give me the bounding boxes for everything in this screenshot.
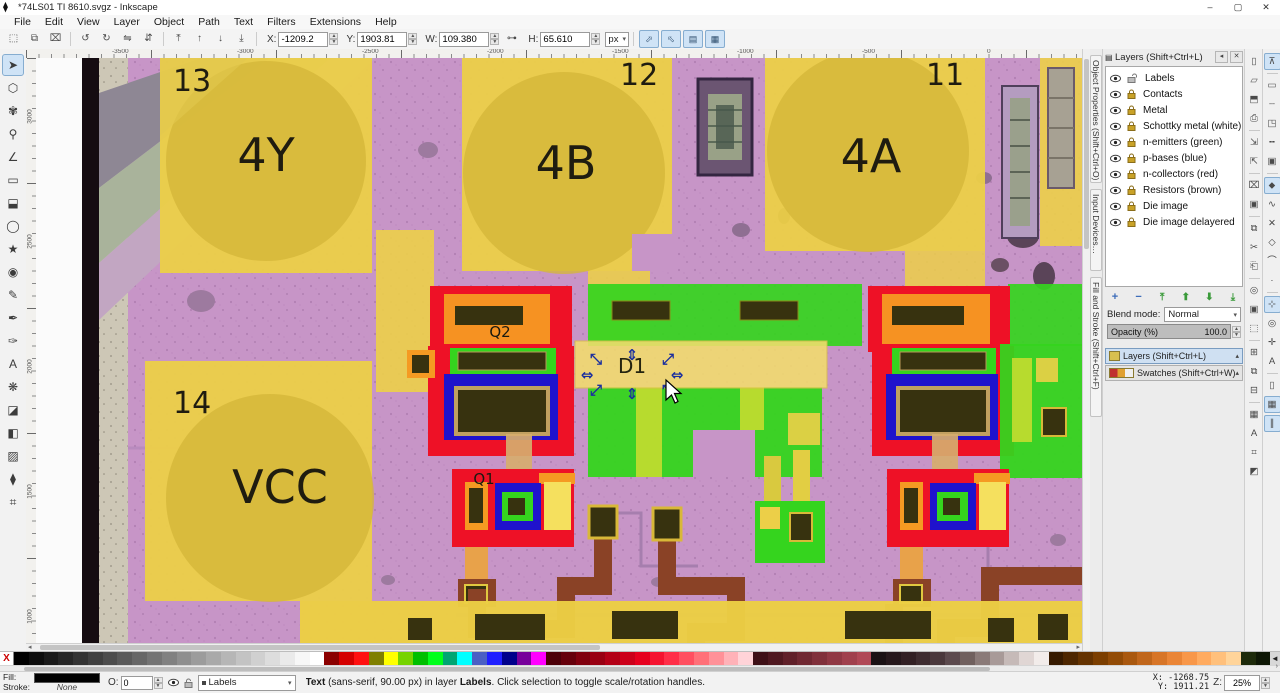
layer-locked-icon[interactable] xyxy=(1127,169,1136,179)
gradient-tool[interactable]: ▨ xyxy=(2,445,24,467)
palette-swatch[interactable] xyxy=(369,652,384,666)
palette-swatch[interactable] xyxy=(206,652,221,666)
hruler-label: -1000 xyxy=(737,49,754,55)
tab-input-devices[interactable]: Input Devices… xyxy=(1090,189,1102,271)
layer-visible-icon[interactable] xyxy=(1110,218,1121,227)
spray-tool[interactable]: ❋ xyxy=(2,376,24,398)
rotate-ccw-button[interactable]: ↺ xyxy=(76,30,95,48)
menu-help[interactable]: Help xyxy=(368,16,404,28)
layer-row-die-image[interactable]: Die image xyxy=(1106,198,1242,214)
duplicate-button[interactable]: ⊞ xyxy=(1246,344,1263,361)
layer-visible-icon[interactable] xyxy=(1110,122,1121,131)
palette-swatch[interactable] xyxy=(1019,652,1034,666)
cut-button[interactable]: ✂ xyxy=(1246,239,1263,256)
palette-swatch[interactable] xyxy=(827,652,842,666)
layer-locked-icon[interactable] xyxy=(1127,153,1136,163)
menu-edit[interactable]: Edit xyxy=(38,16,70,28)
palette-swatch[interactable] xyxy=(310,652,325,666)
palette-swatch[interactable] xyxy=(251,652,266,666)
commands-bar: ▯▱⬒⎙⇲⇱⌧▣⧉✂⎗◎▣⬚⊞⧉⊟▦A⌗◩ xyxy=(1244,49,1263,653)
tool-controls-bar: ⬚⧉⌧↺↻⇋⇵⤒↑↓⤓ X:▲▼Y:▲▼W:▲▼⊶H:▲▼ px ▾ ⬀⬁▤▦ xyxy=(0,29,1280,50)
palette-swatch[interactable] xyxy=(1137,652,1152,666)
layer-row-metal[interactable]: Metal xyxy=(1106,102,1242,118)
pad14-name: VCC xyxy=(232,460,328,514)
separator xyxy=(1267,73,1278,74)
palette-swatch[interactable] xyxy=(502,652,517,666)
palette-swatch[interactable] xyxy=(635,652,650,666)
node-editor-tool[interactable]: ⬡ xyxy=(2,77,24,99)
palette-swatch[interactable] xyxy=(857,652,872,666)
palette-swatch[interactable] xyxy=(1108,652,1123,666)
close-button[interactable]: ✕ xyxy=(1252,2,1280,13)
h-field-spinner[interactable]: ▲▼ xyxy=(591,33,600,45)
deselect-button[interactable]: ⌧ xyxy=(46,30,65,48)
open-document-button[interactable]: ▱ xyxy=(1246,72,1263,89)
palette-swatch[interactable] xyxy=(324,652,339,666)
layers-icon xyxy=(1109,351,1120,361)
box-3d-tool[interactable]: ⬓ xyxy=(2,192,24,214)
export-bitmap-button[interactable]: ⇱ xyxy=(1246,153,1263,170)
palette-swatch[interactable] xyxy=(162,652,177,666)
layer-visible-icon[interactable] xyxy=(1110,90,1121,99)
layer-visible-icon[interactable] xyxy=(1110,202,1121,211)
snap-toolbar: ⊼▭┄◳╍▣⬥∿✕◇⌒·⊹◎✛A▯▦∥ xyxy=(1262,49,1280,653)
opacity-spinner[interactable]: ▲▼ xyxy=(1232,326,1241,338)
svg-text:⇕: ⇕ xyxy=(626,346,639,364)
palette-scroll-right-icon[interactable]: › xyxy=(1276,663,1278,670)
tab-fill-and-stroke[interactable]: Fill and Stroke (Shift+Ctrl+F) xyxy=(1090,277,1102,417)
hruler-label: -2500 xyxy=(362,49,379,55)
palette-swatch[interactable] xyxy=(709,652,724,666)
rotate-cw-button[interactable]: ↻ xyxy=(97,30,116,48)
maximize-button[interactable]: ▢ xyxy=(1224,2,1252,13)
palette-swatch[interactable] xyxy=(783,652,798,666)
palette-swatch[interactable] xyxy=(724,652,739,666)
hruler-label: -3500 xyxy=(112,49,129,55)
layer-list: LabelsContactsMetalSchottky metal (white… xyxy=(1105,66,1243,287)
separator xyxy=(1267,373,1278,374)
palette-swatch[interactable] xyxy=(398,652,413,666)
layer-row-n-collectors-red-[interactable]: n-collectors (red) xyxy=(1106,166,1242,182)
palette-none-swatch[interactable]: X xyxy=(0,652,14,666)
palette-swatch[interactable] xyxy=(990,652,1005,666)
print-document-button[interactable]: ⎙ xyxy=(1246,110,1263,127)
document-properties-button[interactable]: ▣ xyxy=(1246,196,1263,213)
menu-extensions[interactable]: Extensions xyxy=(303,16,368,28)
measure-tool[interactable]: ∠ xyxy=(2,146,24,168)
palette-swatch[interactable] xyxy=(1093,652,1108,666)
snap-bbox-edges-button[interactable]: ┄ xyxy=(1264,96,1280,113)
select-all-button[interactable]: ⬚ xyxy=(4,30,23,48)
stroke-label: Stroke: xyxy=(3,683,30,692)
import-bitmap-button[interactable]: ⇲ xyxy=(1246,134,1263,151)
y-field-input[interactable] xyxy=(357,32,407,47)
lock-ratio-icon[interactable]: ⊶ xyxy=(502,30,521,48)
snap-bbox-centers-button[interactable]: ▣ xyxy=(1264,153,1280,170)
layer-visible-icon[interactable] xyxy=(1110,170,1121,179)
layer-row-n-emitters-green-[interactable]: n-emitters (green) xyxy=(1106,134,1242,150)
x-field-input[interactable] xyxy=(278,32,328,47)
palette-swatch[interactable] xyxy=(354,652,369,666)
d1-metal-strip[interactable] xyxy=(575,341,827,388)
snap-path-intersections-button[interactable]: ✕ xyxy=(1264,215,1280,232)
layers-panel-title: Layers (Shift+Ctrl+L) xyxy=(1115,52,1213,63)
menu-layer[interactable]: Layer xyxy=(107,16,147,28)
layer-visibility-icon[interactable] xyxy=(168,678,179,687)
snap-bounding-box-button[interactable]: ▭ xyxy=(1264,77,1280,94)
palette-swatch[interactable] xyxy=(1123,652,1138,666)
palette-swatch[interactable] xyxy=(768,652,783,666)
layer-locked-icon[interactable] xyxy=(1127,105,1136,115)
dock-layers[interactable]: Layers (Shift+Ctrl+L)▴ xyxy=(1105,348,1243,364)
opacity-field-spinner[interactable]: ▲▼ xyxy=(154,677,163,689)
snap-others-button[interactable]: ⊹ xyxy=(1264,296,1280,313)
raise-to-top-button[interactable]: ⤒ xyxy=(169,30,188,48)
y-field-spinner[interactable]: ▲▼ xyxy=(408,33,417,45)
dock-close-button[interactable]: ✕ xyxy=(1230,51,1243,63)
menu-text[interactable]: Text xyxy=(227,16,260,28)
palette-swatch[interactable] xyxy=(650,652,665,666)
raise-layer-button[interactable]: ⬆ xyxy=(1178,292,1194,303)
snap-rotation-centers-button[interactable]: ✛ xyxy=(1264,334,1280,351)
raise-layer-top-button[interactable]: ⤒ xyxy=(1154,292,1170,303)
layer-visible-icon[interactable] xyxy=(1110,138,1121,147)
layer-locked-icon[interactable] xyxy=(1127,217,1136,227)
palette-swatch[interactable] xyxy=(960,652,975,666)
hscroll-thumb[interactable] xyxy=(40,645,600,650)
palette-swatch[interactable] xyxy=(73,652,88,666)
menu-file[interactable]: File xyxy=(7,16,38,28)
fill-stroke-dialog-button[interactable]: ◩ xyxy=(1246,463,1263,480)
palette-swatch[interactable] xyxy=(280,652,295,666)
palette-swatch[interactable] xyxy=(384,652,399,666)
palette-swatch[interactable] xyxy=(576,652,591,666)
snap-page-border-button[interactable]: ▯ xyxy=(1264,377,1280,394)
layer-lock-icon[interactable] xyxy=(184,678,193,688)
pad13-number: 13 xyxy=(173,64,211,99)
snap-bbox-corners-button[interactable]: ◳ xyxy=(1264,115,1280,132)
palette-swatch[interactable] xyxy=(177,652,192,666)
layer-locked-icon[interactable] xyxy=(1127,201,1136,211)
h-field: H:▲▼ xyxy=(524,32,600,47)
paste-button[interactable]: ⎗ xyxy=(1246,258,1263,275)
flip-horizontal-button[interactable]: ⇋ xyxy=(118,30,137,48)
toolbox: ➤⬡✾⚲∠▭⬓◯★◉✎✒✑A❋◪◧▨⧫⌗ xyxy=(0,49,27,655)
w-field-spinner[interactable]: ▲▼ xyxy=(490,33,499,45)
zoom-selection-button[interactable]: ⬚ xyxy=(1246,320,1263,337)
layer-visible-icon[interactable] xyxy=(1110,154,1121,163)
palette-swatch[interactable] xyxy=(753,652,768,666)
snap-text-baseline-button[interactable]: A xyxy=(1264,353,1280,370)
palette-swatch[interactable] xyxy=(1197,652,1212,666)
layer-name: n-emitters (green) xyxy=(1143,137,1222,148)
snap-nodes-button[interactable]: ⬥ xyxy=(1264,177,1280,194)
palette-swatch[interactable] xyxy=(517,652,532,666)
snap-smooth-nodes-button[interactable]: ⌒ xyxy=(1264,253,1280,270)
canvas-viewport[interactable]: 13 4Y 12 4B 11 4A xyxy=(36,58,1082,643)
palette-swatch[interactable] xyxy=(1226,652,1241,666)
palette-swatch[interactable] xyxy=(842,652,857,666)
group-objects-button[interactable]: ▦ xyxy=(1246,406,1263,423)
save-document-button[interactable]: ⬒ xyxy=(1246,91,1263,108)
palette-swatch[interactable] xyxy=(1034,652,1049,666)
layer-row-schottky-metal-white-[interactable]: Schottky metal (white) xyxy=(1106,118,1242,134)
palette-swatch[interactable] xyxy=(103,652,118,666)
xml-editor-button[interactable]: ⌗ xyxy=(1246,444,1263,461)
palette-swatch[interactable] xyxy=(14,652,29,666)
zoom-drawing-button[interactable]: ◎ xyxy=(1246,282,1263,299)
scroll-right-icon[interactable]: ▸ xyxy=(1076,643,1080,651)
palette-swatch[interactable] xyxy=(339,652,354,666)
unit-select[interactable]: px ▾ xyxy=(605,32,629,47)
close-document-button[interactable]: ⌧ xyxy=(1246,177,1263,194)
minimize-button[interactable]: – xyxy=(1196,2,1224,13)
palette-swatch[interactable] xyxy=(1152,652,1167,666)
palette-swatch[interactable] xyxy=(132,652,147,666)
select-all-layers-button[interactable]: ⧉ xyxy=(25,30,44,48)
zoom-page-button[interactable]: ▣ xyxy=(1246,301,1263,318)
bezier-pen-tool[interactable]: ✒ xyxy=(2,307,24,329)
x-field-spinner[interactable]: ▲▼ xyxy=(329,33,338,45)
scroll-left-icon[interactable]: ◂ xyxy=(28,643,32,651)
layer-row-contacts[interactable]: Contacts xyxy=(1106,86,1242,102)
palette-swatch[interactable] xyxy=(546,652,561,666)
stroke-value[interactable]: None xyxy=(34,683,100,692)
layer-name: n-collectors (red) xyxy=(1143,169,1218,180)
vruler-label: 2500 xyxy=(27,234,34,248)
vruler-label: 2000 xyxy=(27,359,34,373)
transistor-q2[interactable]: Q2 xyxy=(430,286,572,352)
palette-swatch[interactable] xyxy=(531,652,546,666)
palette-swatch[interactable] xyxy=(295,652,310,666)
separator xyxy=(1249,340,1260,341)
chevron-down-icon: ▾ xyxy=(288,679,292,687)
palette-swatch[interactable] xyxy=(1063,652,1078,666)
palette-swatch[interactable] xyxy=(413,652,428,666)
snap-paths-button[interactable]: ∿ xyxy=(1264,196,1280,213)
create-clone-button[interactable]: ⧉ xyxy=(1246,363,1263,380)
text-tool[interactable]: A xyxy=(2,353,24,375)
y-field-label: Y: xyxy=(346,34,355,45)
y-field: Y:▲▼ xyxy=(342,32,417,47)
star-tool[interactable]: ★ xyxy=(2,238,24,260)
layer-locked-icon[interactable] xyxy=(1127,185,1136,195)
palette-swatch[interactable] xyxy=(457,652,472,666)
bond-pad-4y[interactable]: 13 4Y xyxy=(160,58,372,273)
palette-swatch[interactable] xyxy=(1182,652,1197,666)
layer-name: Die image delayered xyxy=(1143,217,1235,228)
tab-object-properties[interactable]: Object Properties (Shift+Ctrl+O) xyxy=(1090,55,1102,183)
separator xyxy=(1267,292,1278,293)
remove-layer-button[interactable]: − xyxy=(1131,291,1147,303)
connector-tool[interactable]: ⌗ xyxy=(2,491,24,513)
opacity-slider[interactable]: Opacity (%) 100.0 xyxy=(1107,324,1231,339)
paint-bucket-tool[interactable]: ◧ xyxy=(2,422,24,444)
snap-line-midpoints-button[interactable]: · xyxy=(1264,272,1280,289)
eraser-tool[interactable]: ◪ xyxy=(2,399,24,421)
palette-swatch[interactable] xyxy=(1256,652,1271,666)
layer-visible-icon[interactable] xyxy=(1110,74,1121,83)
palette-swatch[interactable] xyxy=(812,652,827,666)
hruler-label: -2000 xyxy=(487,49,504,55)
palette-swatch[interactable] xyxy=(1078,652,1093,666)
blend-mode-select[interactable]: Normal ▾ xyxy=(1164,307,1241,322)
chevron-up-icon: ▴ xyxy=(1235,369,1239,377)
palette-swatch[interactable] xyxy=(236,652,251,666)
hruler-label: 0 xyxy=(987,49,991,55)
snap-guides-button[interactable]: ∥ xyxy=(1264,415,1280,432)
scale-stroke-toggle[interactable]: ⬀ xyxy=(639,30,659,48)
palette-swatch[interactable] xyxy=(428,652,443,666)
layer-name: Schottky metal (white) xyxy=(1143,121,1241,132)
snap-bbox-edge-midpoints-button[interactable]: ╍ xyxy=(1264,134,1280,151)
workspace: ➤⬡✾⚲∠▭⬓◯★◉✎✒✑A❋◪◧▨⧫⌗ -3500-3000-2500-200… xyxy=(0,49,1280,651)
menu-view[interactable]: View xyxy=(70,16,107,28)
palette-swatch[interactable] xyxy=(191,652,206,666)
unit-value: px xyxy=(608,34,618,45)
snap-object-centers-button[interactable]: ◎ xyxy=(1264,315,1280,332)
separator xyxy=(1249,402,1260,403)
window-title: *74LS01 TI 8610.svgz - Inkscape xyxy=(18,2,158,13)
layer-row-labels[interactable]: Labels xyxy=(1106,70,1242,86)
scale-patterns-toggle[interactable]: ▦ xyxy=(705,30,725,48)
current-layer-select[interactable]: Labels ▾ xyxy=(198,675,296,691)
layer-row-p-bases-blue-[interactable]: p-bases (blue) xyxy=(1106,150,1242,166)
palette-swatch[interactable] xyxy=(1211,652,1226,666)
palette-swatch[interactable] xyxy=(590,652,605,666)
pencil-tool[interactable]: ✎ xyxy=(2,284,24,306)
cursor-coordinates: X: -1268.75 Y: 1911.21 xyxy=(1153,674,1209,692)
lower-to-bottom-button[interactable]: ⤓ xyxy=(232,30,251,48)
flip-vertical-button[interactable]: ⇵ xyxy=(139,30,158,48)
palette-swatch[interactable] xyxy=(44,652,59,666)
ellipse-tool[interactable]: ◯ xyxy=(2,215,24,237)
new-document-button[interactable]: ▯ xyxy=(1246,53,1263,70)
unlink-clone-button[interactable]: ⊟ xyxy=(1246,382,1263,399)
dock-collapse-button[interactable]: ◂ xyxy=(1215,51,1228,63)
layer-unlocked-icon[interactable] xyxy=(1127,73,1138,83)
palette-swatch[interactable] xyxy=(147,652,162,666)
zoom-field[interactable] xyxy=(1224,675,1260,691)
layer-name: Contacts xyxy=(1143,89,1182,100)
palette-swatch[interactable] xyxy=(487,652,502,666)
layer-row-resistors-brown-[interactable]: Resistors (brown) xyxy=(1106,182,1242,198)
palette-swatch[interactable] xyxy=(1049,652,1064,666)
w-field-input[interactable] xyxy=(439,32,489,47)
h-field-label: H: xyxy=(528,34,538,45)
menu-filters[interactable]: Filters xyxy=(260,16,303,28)
selector-tool[interactable]: ➤ xyxy=(2,54,24,76)
palette-swatch[interactable] xyxy=(58,652,73,666)
separator xyxy=(256,32,257,46)
palette-swatch[interactable] xyxy=(797,652,812,666)
zoom-tool[interactable]: ⚲ xyxy=(2,123,24,145)
snap-grids-button[interactable]: ▦ xyxy=(1264,396,1280,413)
via-structure[interactable] xyxy=(698,79,752,175)
dock-swatches[interactable]: Swatches (Shift+Ctrl+W)▴ xyxy=(1105,365,1243,381)
snap-cusp-nodes-button[interactable]: ◇ xyxy=(1264,234,1280,251)
zoom-spinner[interactable]: ▲▼ xyxy=(1261,677,1270,689)
opacity-field[interactable] xyxy=(121,676,153,690)
layer-row-die-image-delayered[interactable]: Die image delayered xyxy=(1106,214,1242,230)
palette-swatch[interactable] xyxy=(1004,652,1019,666)
palette-swatch[interactable] xyxy=(1167,652,1182,666)
lower-layer-bottom-button[interactable]: ⤓ xyxy=(1225,292,1241,303)
palette-swatch[interactable] xyxy=(265,652,280,666)
menu-object[interactable]: Object xyxy=(147,16,191,28)
text-and-font-button[interactable]: A xyxy=(1246,425,1263,442)
palette-swatch[interactable] xyxy=(221,652,236,666)
layer-visible-icon[interactable] xyxy=(1110,106,1121,115)
snap-enabled-button[interactable]: ⊼ xyxy=(1264,53,1280,70)
palette-swatch[interactable] xyxy=(117,652,132,666)
color-palette: X ◄ xyxy=(0,651,1280,666)
dock-label: Swatches (Shift+Ctrl+W) xyxy=(1137,368,1236,378)
palette-swatch[interactable] xyxy=(738,652,753,666)
palette-swatch[interactable] xyxy=(694,652,709,666)
palette-swatch[interactable] xyxy=(975,652,990,666)
pad14-number: 14 xyxy=(173,386,211,421)
tweak-tool[interactable]: ✾ xyxy=(2,100,24,122)
palette-swatch[interactable] xyxy=(1241,652,1256,666)
add-layer-button[interactable]: + xyxy=(1107,291,1123,303)
layer-locked-icon[interactable] xyxy=(1127,89,1136,99)
layer-visible-icon[interactable] xyxy=(1110,186,1121,195)
layer-locked-icon[interactable] xyxy=(1127,121,1136,131)
palette-swatch[interactable] xyxy=(620,652,635,666)
palette-swatch[interactable] xyxy=(679,652,694,666)
palette-swatch[interactable] xyxy=(29,652,44,666)
palette-swatch[interactable] xyxy=(871,652,886,666)
separator xyxy=(1249,278,1260,279)
title-bar: ⧫ *74LS01 TI 8610.svgz - Inkscape – ▢ ✕ xyxy=(0,0,1280,16)
menu-path[interactable]: Path xyxy=(191,16,227,28)
pad11-name: 4A xyxy=(841,129,902,183)
scale-corners-toggle[interactable]: ⬁ xyxy=(661,30,681,48)
separator xyxy=(70,32,71,46)
layer-locked-icon[interactable] xyxy=(1127,137,1136,147)
palette-swatch[interactable] xyxy=(561,652,576,666)
palette-swatch[interactable] xyxy=(901,652,916,666)
vscroll-thumb[interactable] xyxy=(1084,59,1089,249)
dropper-tool[interactable]: ⧫ xyxy=(2,468,24,490)
scale-gradients-toggle[interactable]: ▤ xyxy=(683,30,703,48)
transistor-q2-mirror[interactable] xyxy=(868,286,1010,352)
copy-button[interactable]: ⧉ xyxy=(1246,220,1263,237)
palette-swatch[interactable] xyxy=(916,652,931,666)
h-field-input[interactable] xyxy=(540,32,590,47)
palette-swatch[interactable] xyxy=(605,652,620,666)
palette-swatch[interactable] xyxy=(664,652,679,666)
lower-layer-button[interactable]: ⬇ xyxy=(1201,292,1217,303)
die-drawing[interactable]: 13 4Y 12 4B 11 4A xyxy=(36,58,1082,643)
lower-button[interactable]: ↓ xyxy=(211,30,230,48)
layers-icon: ▤ xyxy=(1105,53,1115,62)
layer-list-buttons: +−⤒⬆⬇⤓ xyxy=(1103,288,1245,306)
raise-button[interactable]: ↑ xyxy=(190,30,209,48)
bond-pad-vcc[interactable]: 14 VCC xyxy=(145,361,374,602)
palette-swatch[interactable] xyxy=(88,652,103,666)
palette-swatch[interactable] xyxy=(945,652,960,666)
separator xyxy=(1249,130,1260,131)
calligraphy-tool[interactable]: ✑ xyxy=(2,330,24,352)
palette-swatch[interactable] xyxy=(886,652,901,666)
palette-swatch[interactable] xyxy=(443,652,458,666)
rectangle-tool[interactable]: ▭ xyxy=(2,169,24,191)
palette-swatch[interactable] xyxy=(472,652,487,666)
palette-swatch[interactable] xyxy=(930,652,945,666)
spiral-tool[interactable]: ◉ xyxy=(2,261,24,283)
